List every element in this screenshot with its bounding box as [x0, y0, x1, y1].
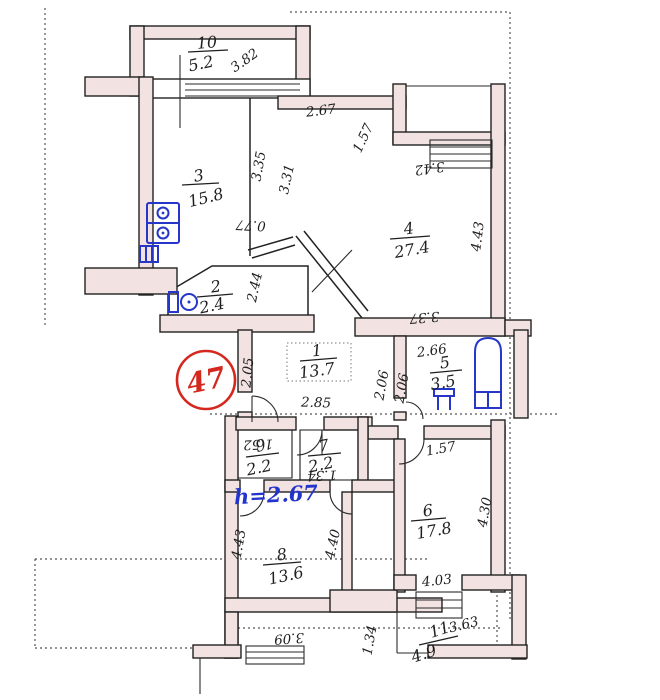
- dim-room6-top: 1.57: [425, 438, 458, 459]
- label-room-6-area: 17.8: [415, 518, 453, 543]
- label-room-1-number: 1: [311, 341, 323, 361]
- label-room-3-number: 3: [192, 165, 205, 185]
- dim-room8-right: 4.40: [322, 527, 344, 561]
- label-room-4-area: 27.4: [392, 237, 431, 262]
- dim-room8-bottom: 3.09: [273, 629, 305, 647]
- dim-balcony-diagonal: 3.63: [447, 614, 480, 637]
- dim-closet7-bottom: 1.34: [307, 466, 338, 483]
- dim-room10-width: 3.82: [228, 46, 262, 76]
- dim-hall-width: 2.85: [300, 394, 332, 411]
- dim-room4-right: 4.43: [468, 221, 488, 254]
- dim-hall-left: 2.05: [238, 357, 257, 390]
- label-room-9-area: 2.2: [243, 456, 273, 480]
- label-room-10-area: 5.2: [186, 52, 215, 76]
- dim-closet9-top: 1.52: [243, 435, 274, 452]
- apartment-number: 47: [184, 360, 229, 400]
- dim-room4-notch: 1.57: [350, 121, 377, 155]
- dim-bath-left-outer: 2.06: [371, 369, 392, 403]
- dim-balcony-top: 4.03: [420, 571, 453, 590]
- dim-room4-left: 3.31: [276, 163, 298, 196]
- dim-room4-bottom: 3.37: [408, 308, 440, 327]
- label-room-3-area: 15.8: [186, 184, 225, 211]
- stairs-bottom-left: [246, 646, 304, 664]
- floor-plan-sheet: 47 h=2.67 10 5.2 3 15.8 4 27.4 2 2.4 1 1…: [0, 0, 660, 700]
- window-room10: [143, 79, 310, 98]
- label-room-2-area: 2.4: [196, 294, 226, 318]
- dim-room3-right: 3.35: [249, 150, 270, 182]
- label-room-8-number: 8: [275, 544, 288, 564]
- fixture-bathtub: [475, 338, 501, 408]
- label-room-10-number: 10: [196, 32, 218, 53]
- dim-room3-niche: 0.77: [235, 216, 266, 234]
- floor-plan-drawing: 47 h=2.67 10 5.2 3 15.8 4 27.4 2 2.4 1 1…: [0, 0, 660, 700]
- apartment-number-badge: 47: [177, 351, 235, 409]
- label-room-1-area: 13.7: [298, 359, 337, 383]
- dim-hall-niche: 2.44: [244, 271, 266, 305]
- label-room-8-area: 13.6: [266, 563, 305, 589]
- label-room-4-number: 4: [401, 218, 415, 238]
- dim-entry-passage: 1.34: [360, 624, 381, 656]
- dim-room4-entry-top: 3.42: [414, 158, 446, 178]
- label-room-6-number: 6: [421, 500, 434, 520]
- label-room-5-area: 3.5: [429, 371, 457, 394]
- label-room-11-area: 4.9: [408, 641, 439, 667]
- fixture-toilet: [169, 292, 197, 312]
- dim-room4-top: 2.67: [304, 101, 337, 121]
- door-arc-bathroom: [406, 402, 423, 419]
- height-note: h=2.67: [233, 480, 319, 509]
